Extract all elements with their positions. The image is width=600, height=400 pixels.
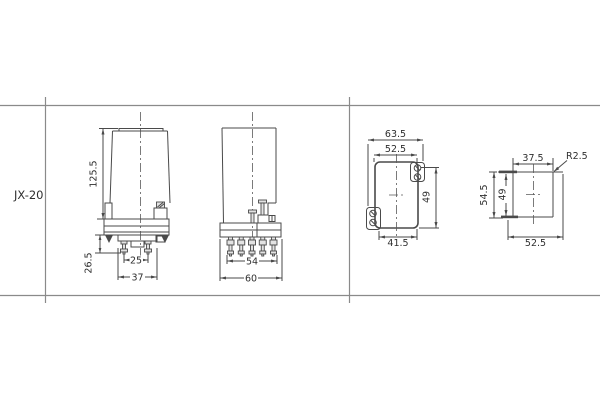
panel-cutout-side-view: 37.5 R2.5 54.5 49 52.5 bbox=[479, 151, 588, 249]
mounting-tab-bottom-left bbox=[367, 208, 381, 230]
svg-text:54.5: 54.5 bbox=[479, 184, 490, 205]
svg-text:52.5: 52.5 bbox=[525, 238, 546, 249]
svg-text:54: 54 bbox=[246, 257, 258, 268]
svg-text:25: 25 bbox=[130, 256, 142, 267]
dim-cutout-bottom-width: 41.5 bbox=[379, 229, 417, 249]
front-view-pins bbox=[227, 237, 277, 256]
dim-pin-row-width: 54 bbox=[227, 255, 277, 268]
panel-edge-top bbox=[499, 171, 517, 174]
relay-side-view: 125.5 26.5 25 37 bbox=[84, 112, 171, 284]
svg-text:125.5: 125.5 bbox=[89, 160, 100, 187]
svg-text:63.5: 63.5 bbox=[385, 129, 406, 140]
dim-cutout-width: 52.5 bbox=[374, 144, 417, 162]
svg-text:60: 60 bbox=[245, 274, 257, 285]
svg-text:R2.5: R2.5 bbox=[566, 151, 588, 162]
side-terminal-screw bbox=[154, 202, 167, 219]
panel-cutout-front-view: 63.5 52.5 49 41.5 bbox=[367, 129, 440, 249]
svg-text:49: 49 bbox=[498, 188, 509, 200]
mounting-foot-left bbox=[105, 235, 113, 243]
svg-text:37.5: 37.5 bbox=[522, 153, 543, 164]
svg-text:37: 37 bbox=[131, 273, 143, 284]
dim-overall-height: 125.5 bbox=[89, 129, 119, 220]
dim-cutout-height: 49 bbox=[498, 174, 512, 216]
relay-front-view: 54 60 bbox=[220, 112, 282, 285]
svg-text:41.5: 41.5 bbox=[387, 238, 408, 249]
dim-pin-length: 26.5 bbox=[84, 235, 122, 274]
dim-hole-span-height: 49 bbox=[419, 168, 439, 229]
svg-text:26.5: 26.5 bbox=[84, 252, 95, 273]
dim-bottom-cutout-width: 52.5 bbox=[508, 174, 563, 249]
svg-text:52.5: 52.5 bbox=[385, 144, 406, 155]
outline-drawing-canvas: JX-20 bbox=[0, 0, 600, 400]
panel-edge-bottom bbox=[501, 216, 518, 219]
svg-text:49: 49 bbox=[422, 191, 433, 203]
dim-pin-spacing: 25 bbox=[124, 254, 148, 267]
dim-top-width: 37.5 bbox=[513, 153, 553, 171]
dim-cutout-overall-width: 63.5 bbox=[368, 129, 423, 206]
row-label: JX-20 bbox=[13, 188, 43, 202]
dim-corner-radius: R2.5 bbox=[554, 151, 588, 172]
